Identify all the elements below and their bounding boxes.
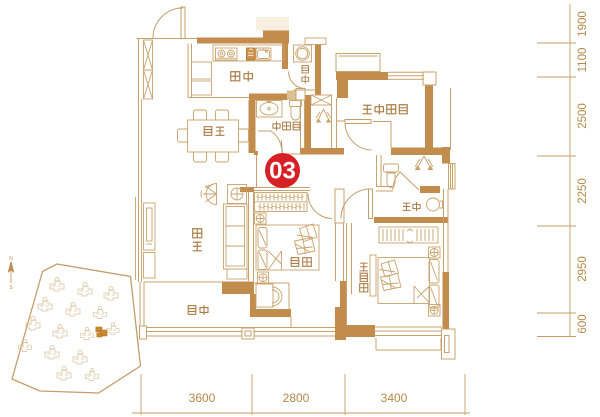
svg-text:3600: 3600 — [189, 391, 216, 405]
svg-text:600: 600 — [577, 314, 589, 333]
svg-text:2950: 2950 — [577, 256, 589, 282]
svg-text:03: 03 — [269, 158, 296, 185]
svg-text:1900: 1900 — [577, 11, 589, 37]
svg-text:2500: 2500 — [577, 103, 589, 129]
svg-text:N: N — [9, 256, 13, 262]
svg-text:3400: 3400 — [381, 391, 408, 405]
svg-text:2800: 2800 — [283, 391, 310, 405]
svg-text:2250: 2250 — [577, 178, 589, 204]
svg-text:1100: 1100 — [577, 48, 589, 73]
